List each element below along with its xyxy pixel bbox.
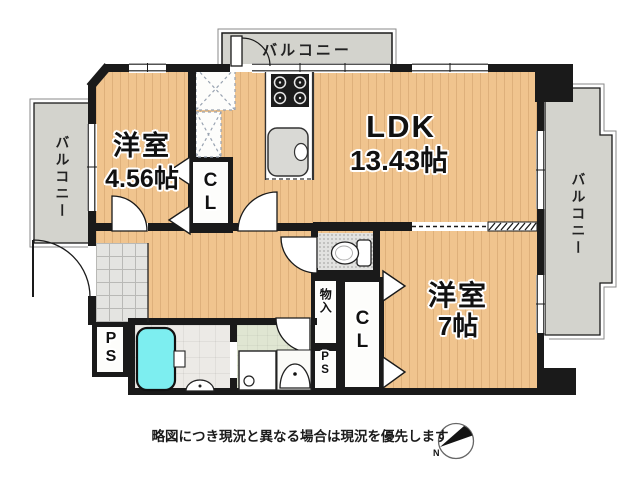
storage-label: 物入 bbox=[319, 288, 332, 314]
bedroom2-name: 洋室 bbox=[398, 281, 518, 310]
bedroom1-name: 洋室 bbox=[92, 132, 192, 160]
compass-n-label: N bbox=[433, 448, 440, 458]
window-balcony-slider bbox=[230, 63, 390, 73]
door-bedroom1 bbox=[112, 196, 147, 231]
bedroom1-size: 4.56帖 bbox=[82, 166, 202, 192]
window-ldk-top bbox=[412, 63, 488, 73]
door-hall-ldk bbox=[238, 192, 277, 231]
ps2-label: PS bbox=[319, 351, 331, 377]
ps1-label: PS bbox=[102, 330, 119, 366]
closet1-label: CL bbox=[200, 170, 220, 216]
plan-linework: N bbox=[0, 0, 640, 480]
partition-hatch bbox=[488, 222, 537, 231]
closet2-label: CL bbox=[352, 308, 372, 354]
toilet-icon bbox=[332, 240, 372, 266]
ldk-name: LDK bbox=[341, 111, 461, 144]
door-entrance bbox=[33, 240, 90, 297]
balcony-left-label: バルコニー bbox=[55, 135, 70, 220]
floorplan: N 洋室 4.56帖 LDK 13.43帖 洋室 7帖 CL CL 物入 PS … bbox=[0, 0, 640, 480]
washer-space-icon bbox=[239, 351, 276, 390]
window-ldk-right bbox=[536, 131, 545, 209]
sink-icon bbox=[268, 128, 308, 176]
window-bedroom2-right bbox=[536, 275, 545, 333]
window-bedroom1-top bbox=[129, 63, 166, 73]
balcony-top-label: バルコニー bbox=[222, 43, 392, 59]
balcony-right-label: バルコニー bbox=[571, 172, 586, 257]
stove-icon bbox=[271, 74, 309, 107]
bathtub-icon bbox=[137, 328, 214, 391]
bedroom2-size: 7帖 bbox=[398, 313, 518, 340]
dashed-space-squares bbox=[196, 68, 235, 157]
door-washroom bbox=[276, 318, 310, 352]
ldk-size: 13.43帖 bbox=[319, 146, 479, 175]
washbasin-icon bbox=[277, 350, 311, 390]
door-toilet bbox=[281, 237, 317, 273]
disclaimer-text: 略図につき現況と異なる場合は現況を優先します bbox=[40, 430, 560, 444]
